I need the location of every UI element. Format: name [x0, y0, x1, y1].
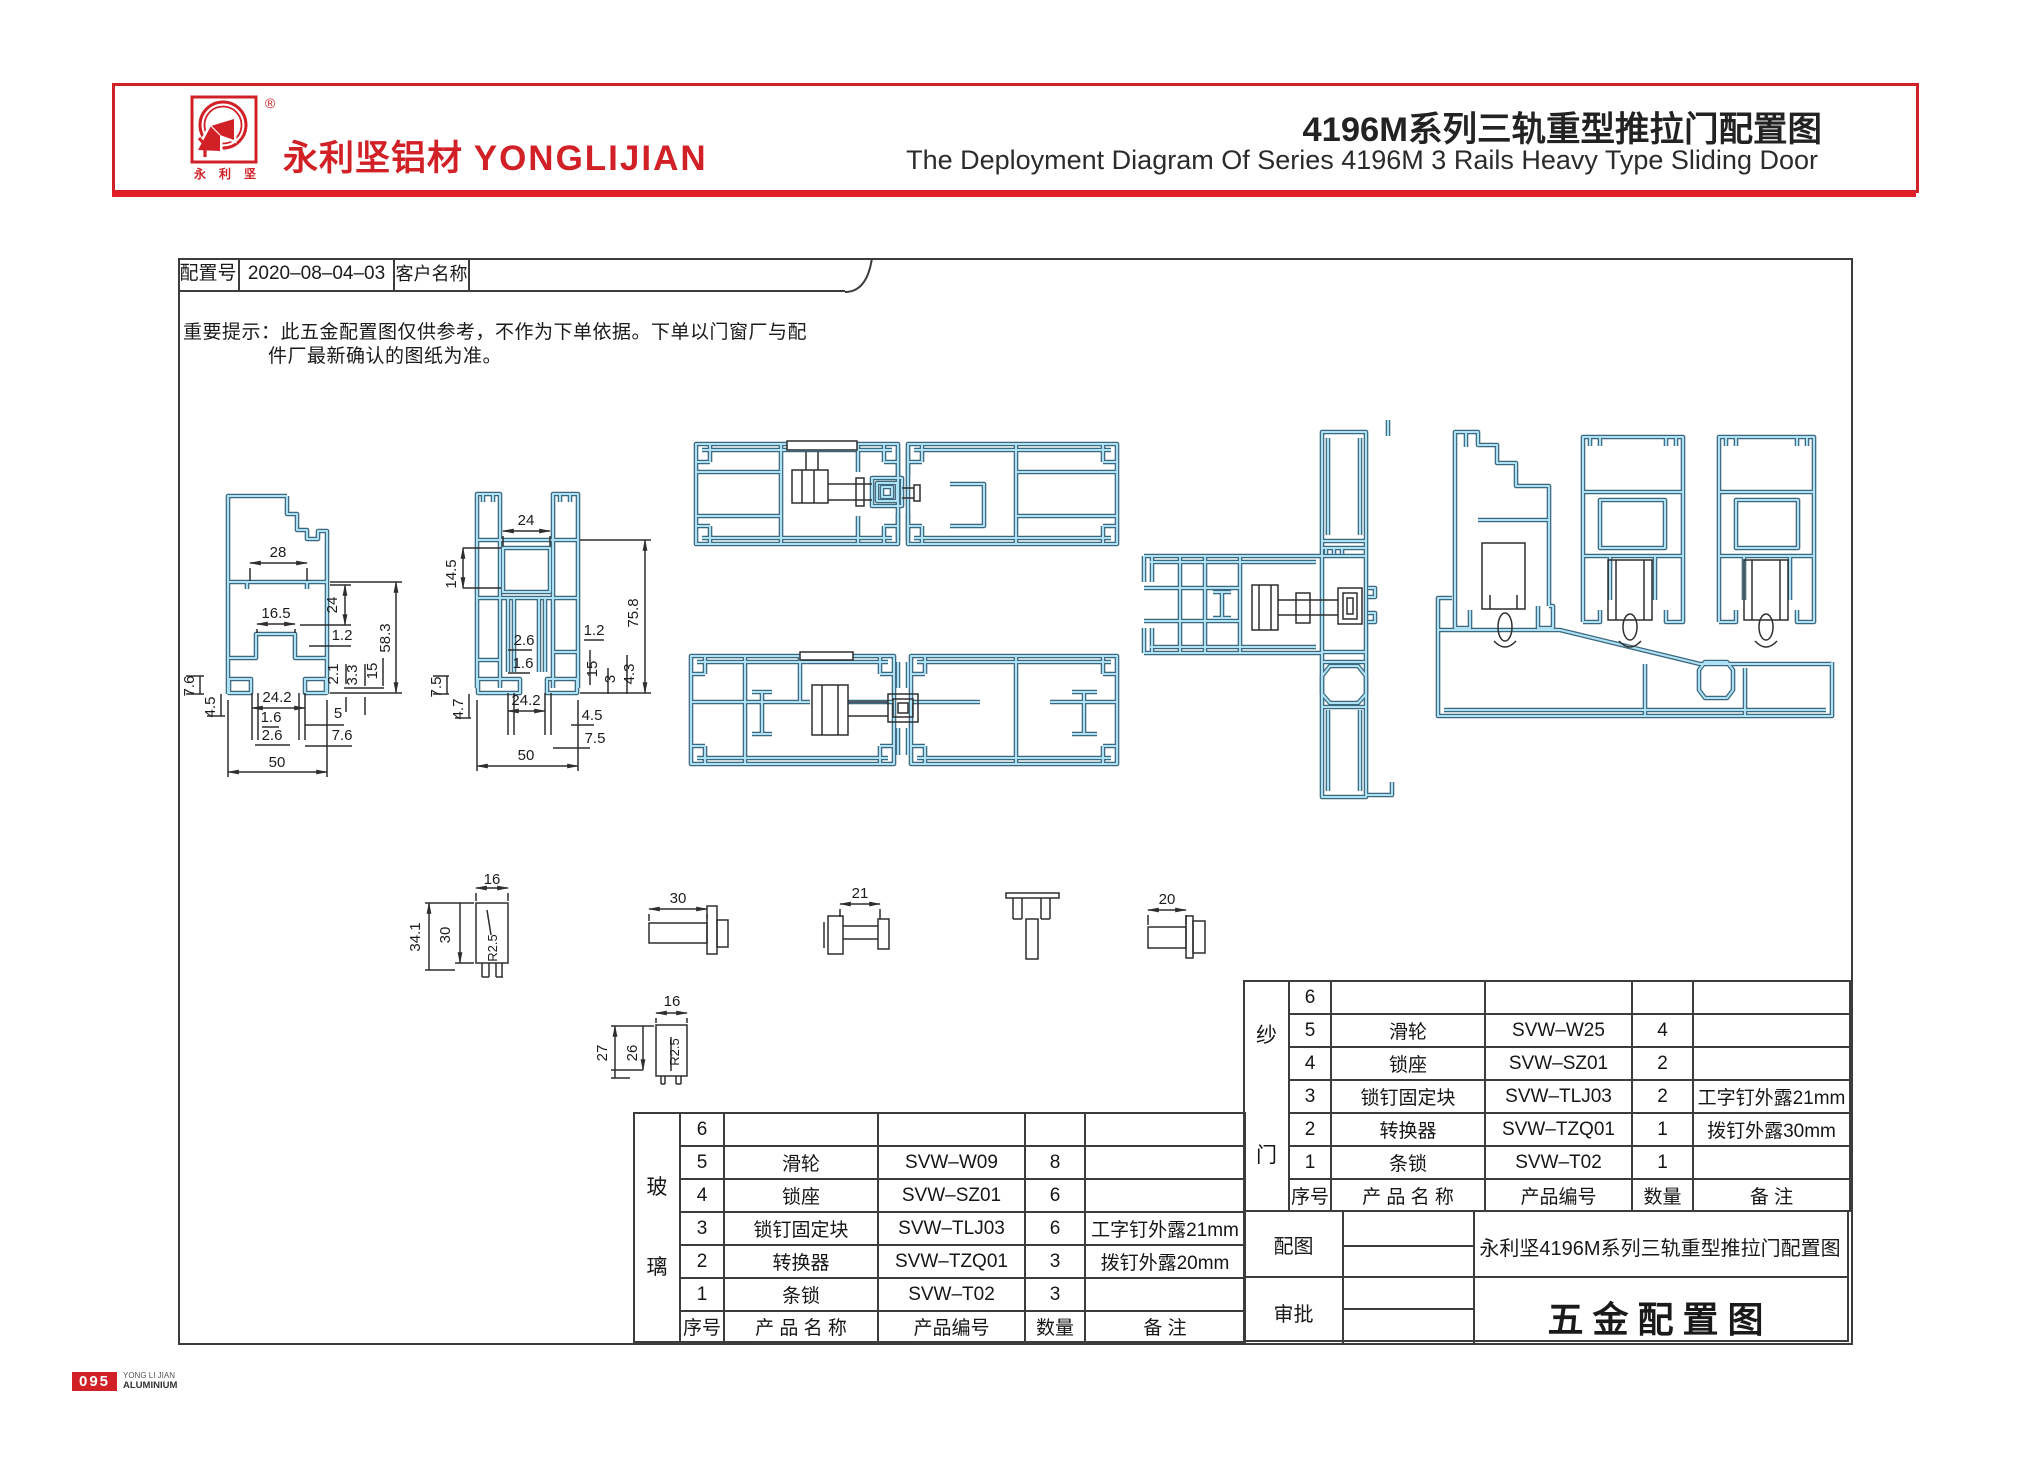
svg-text:7.5: 7.5	[428, 677, 445, 698]
svg-text:30: 30	[670, 890, 687, 907]
svg-text:14.5: 14.5	[443, 559, 460, 588]
svg-text:7.6: 7.6	[332, 727, 353, 744]
svg-text:R2.5: R2.5	[667, 1038, 682, 1065]
svg-text:1.6: 1.6	[261, 709, 282, 726]
svg-text:16: 16	[484, 871, 501, 888]
svg-text:7.6: 7.6	[181, 676, 198, 697]
svg-text:1.6: 1.6	[513, 655, 534, 672]
svg-text:15: 15	[584, 661, 601, 678]
svg-text:30: 30	[437, 927, 454, 944]
svg-text:4.5: 4.5	[582, 707, 603, 724]
svg-text:2.1: 2.1	[325, 664, 342, 685]
svg-text:50: 50	[518, 747, 535, 764]
svg-text:R2.5: R2.5	[485, 934, 500, 961]
svg-text:28: 28	[270, 544, 287, 561]
svg-text:4.7: 4.7	[450, 699, 467, 720]
svg-text:16.5: 16.5	[261, 605, 290, 622]
svg-text:16: 16	[664, 993, 681, 1010]
svg-text:3: 3	[602, 675, 619, 683]
svg-text:2.6: 2.6	[262, 727, 283, 744]
svg-text:7.5: 7.5	[585, 730, 606, 747]
svg-text:20: 20	[1159, 891, 1176, 908]
svg-text:27: 27	[594, 1045, 611, 1062]
svg-text:1.2: 1.2	[584, 622, 605, 639]
svg-text:24.2: 24.2	[511, 692, 540, 709]
svg-text:4.3: 4.3	[621, 664, 638, 685]
svg-text:24: 24	[324, 597, 341, 614]
svg-text:21: 21	[852, 885, 869, 902]
svg-text:34.1: 34.1	[407, 922, 424, 951]
svg-text:2.6: 2.6	[514, 632, 535, 649]
svg-text:75.8: 75.8	[625, 598, 642, 627]
svg-text:24: 24	[518, 512, 535, 529]
svg-text:58.3: 58.3	[377, 623, 394, 652]
svg-text:5: 5	[334, 705, 342, 722]
svg-text:24.2: 24.2	[262, 689, 291, 706]
svg-text:15: 15	[364, 663, 381, 680]
svg-text:4.5: 4.5	[202, 697, 219, 718]
svg-text:26: 26	[624, 1045, 641, 1062]
svg-text:3.3: 3.3	[344, 665, 361, 686]
svg-text:1.2: 1.2	[332, 627, 353, 644]
svg-text:50: 50	[269, 754, 286, 771]
